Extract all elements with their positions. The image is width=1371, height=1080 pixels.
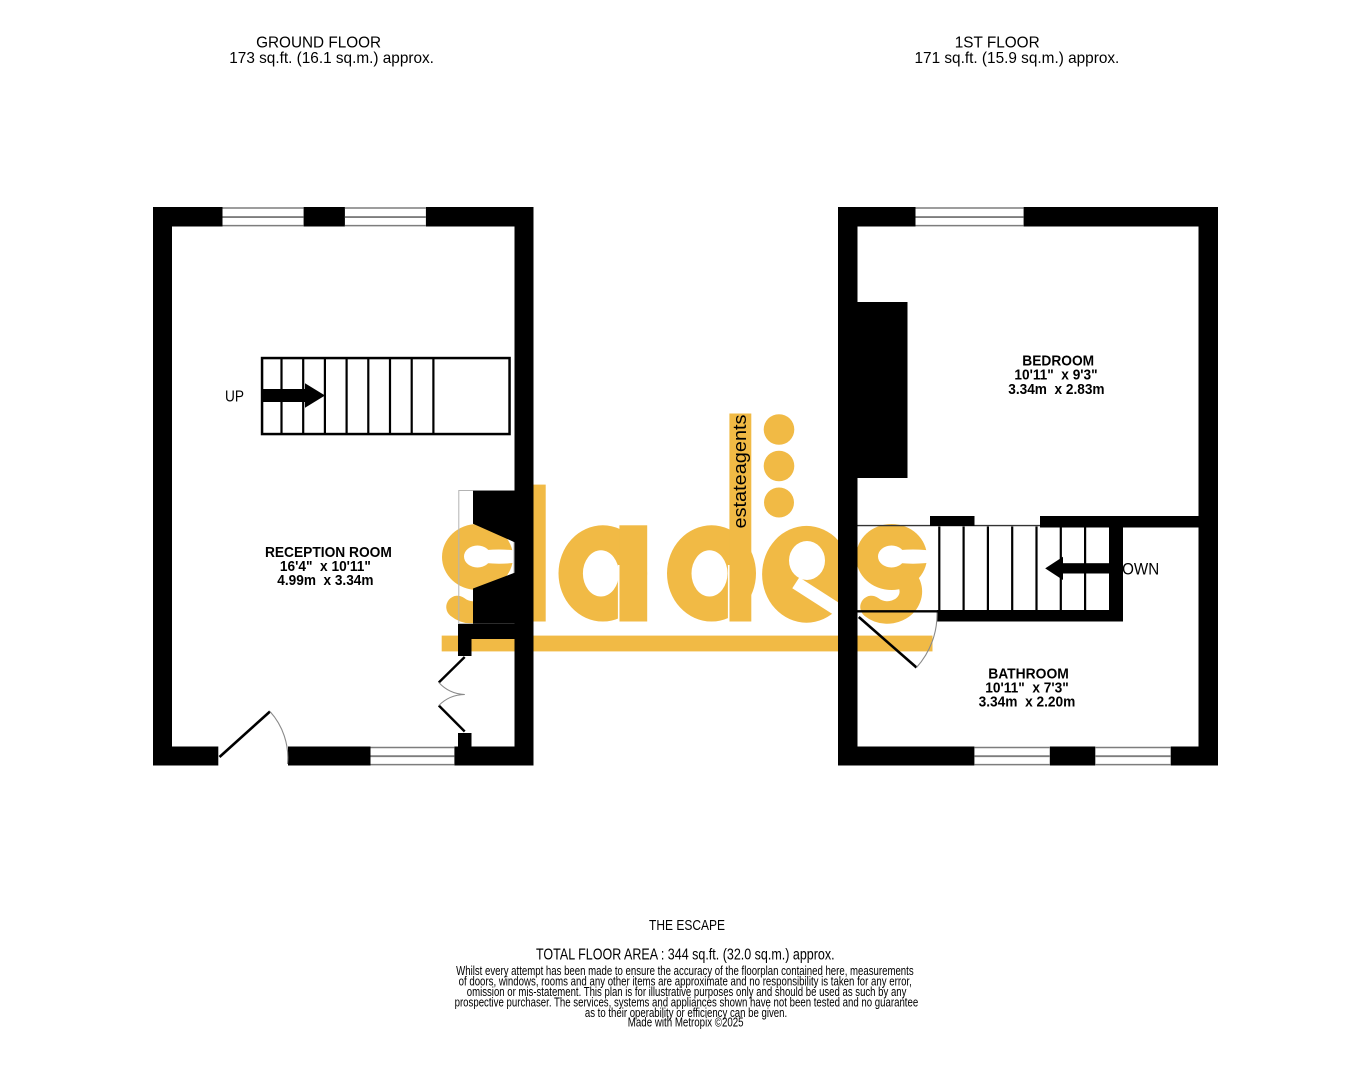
svg-text:1ST FLOOR: 1ST FLOOR [955, 34, 1040, 51]
svg-text:UP: UP [225, 389, 244, 406]
svg-text:THE ESCAPE: THE ESCAPE [649, 918, 725, 934]
svg-text:TOTAL FLOOR AREA : 344 sq.ft.: TOTAL FLOOR AREA : 344 sq.ft. (32.0 sq.m… [536, 947, 835, 964]
svg-text:3.34m x 2.83m: 3.34m x 2.83m [1008, 382, 1104, 398]
svg-text:4.99m x 3.34m: 4.99m x 3.34m [277, 573, 373, 589]
svg-text:Made with Metropix ©2025: Made with Metropix ©2025 [628, 1015, 744, 1030]
svg-text:173 sq.ft. (16.1 sq.m.) approx: 173 sq.ft. (16.1 sq.m.) approx. [229, 50, 434, 67]
svg-text:3.34m x 2.20m: 3.34m x 2.20m [979, 694, 1076, 710]
svg-text:estateagents: estateagents [730, 415, 750, 529]
svg-text:171 sq.ft. (15.9 sq.m.) approx: 171 sq.ft. (15.9 sq.m.) approx. [915, 50, 1120, 67]
svg-text:GROUND FLOOR: GROUND FLOOR [256, 34, 381, 51]
